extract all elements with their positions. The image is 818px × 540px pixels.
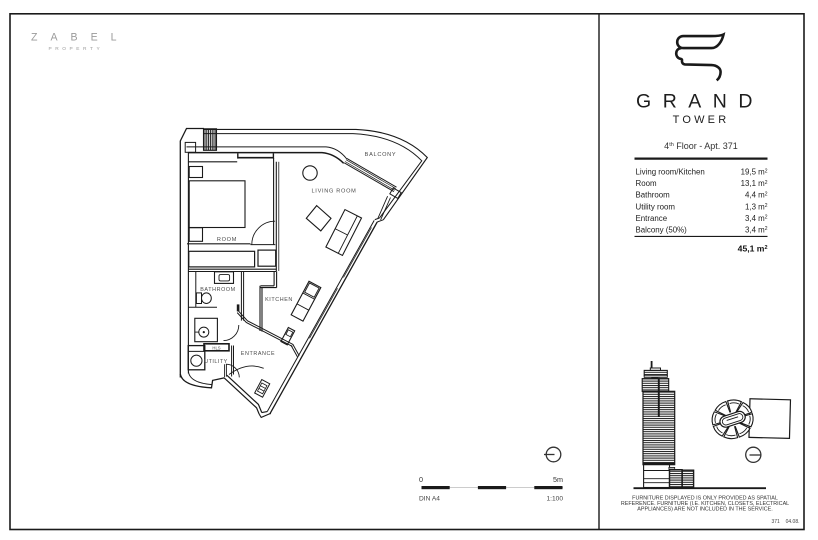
svg-text:HLS: HLS (212, 346, 220, 351)
svg-text:4th Floor - Apt. 371: 4th Floor - Apt. 371 (664, 141, 738, 151)
svg-text:LIVING ROOM: LIVING ROOM (312, 189, 357, 195)
svg-text:ENTRANCE: ENTRANCE (241, 351, 275, 357)
svg-text:3,4 m2: 3,4 m2 (745, 225, 768, 234)
svg-text:DIN A4: DIN A4 (419, 496, 440, 503)
svg-text:GRAND: GRAND (636, 91, 764, 113)
svg-text:BATHROOM: BATHROOM (200, 287, 236, 293)
svg-text:KITCHEN: KITCHEN (265, 297, 293, 303)
svg-text:PROPERTY: PROPERTY (49, 46, 104, 52)
svg-text:Room: Room (636, 179, 657, 188)
svg-text:Balcony (50%): Balcony (50%) (636, 225, 688, 234)
svg-text:Bathroom: Bathroom (636, 191, 671, 200)
svg-text:ZABEL: ZABEL (31, 32, 130, 44)
svg-text:371: 371 (772, 519, 781, 525)
svg-text:APPLIANCES) ARE NOT INCLUDED I: APPLIANCES) ARE NOT INCLUDED IN THE SERV… (637, 506, 772, 512)
svg-text:TOWER: TOWER (673, 114, 730, 126)
svg-text:19,5 m2: 19,5 m2 (741, 168, 768, 177)
svg-text:UTILITY: UTILITY (204, 359, 228, 365)
svg-text:3,4 m2: 3,4 m2 (745, 214, 768, 223)
svg-text:Entrance: Entrance (636, 214, 668, 223)
svg-text:45,1 m2: 45,1 m2 (738, 244, 768, 254)
svg-text:5m: 5m (553, 475, 563, 484)
svg-text:ROOM: ROOM (217, 237, 237, 243)
svg-text:Living room/Kitchen: Living room/Kitchen (636, 168, 705, 177)
svg-text:1:100: 1:100 (546, 496, 563, 503)
svg-text:0: 0 (419, 475, 423, 484)
svg-text:4,4 m2: 4,4 m2 (745, 191, 768, 200)
svg-text:Utility room: Utility room (636, 202, 676, 211)
svg-text:13,1 m2: 13,1 m2 (741, 179, 768, 188)
svg-text:04.08.: 04.08. (786, 519, 800, 525)
svg-text:1,3 m2: 1,3 m2 (745, 202, 768, 211)
svg-text:BALCONY: BALCONY (365, 152, 397, 158)
